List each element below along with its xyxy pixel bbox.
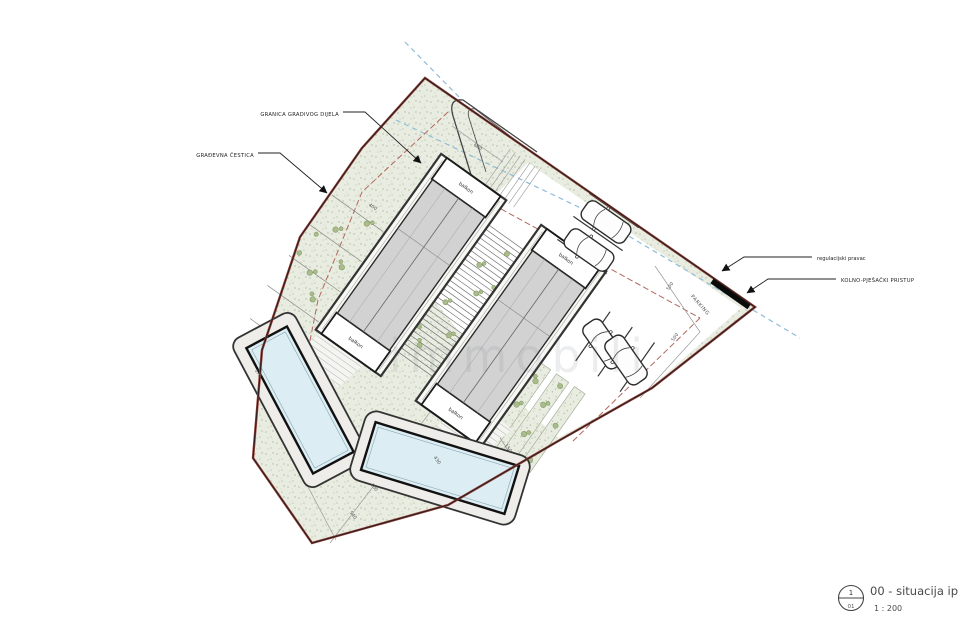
watermark: immobili xyxy=(389,329,651,383)
annotation-cestica: GRAĐEVNA ČESTICA xyxy=(196,152,327,193)
annotation-kolno: KOLNO-PJEŠAČKI PRISTUP xyxy=(747,277,914,293)
cestica-label: GRAĐEVNA ČESTICA xyxy=(196,152,254,159)
granica-label: GRANICA GRADIVOG DIJELA xyxy=(260,112,339,118)
site-plan-sheet: balkon balkon balkon balkon xyxy=(0,0,965,640)
kolno-label: KOLNO-PJEŠAČKI PRISTUP xyxy=(841,277,914,284)
regulacijski-label: regulacijski pravac xyxy=(817,256,866,262)
annotation-regulacijski: regulacijski pravac xyxy=(722,256,866,271)
drawing-scale: 1 : 200 xyxy=(874,604,902,613)
sheet-number-bottom: 01 xyxy=(848,604,855,610)
site-plan-drawing: balkon balkon balkon balkon xyxy=(0,0,965,640)
sheet-number-top: 1 xyxy=(849,589,853,597)
drawing-title: 00 - situacija ip xyxy=(870,584,958,598)
title-block: 1 01 00 - situacija ip 1 : 200 xyxy=(839,584,959,613)
